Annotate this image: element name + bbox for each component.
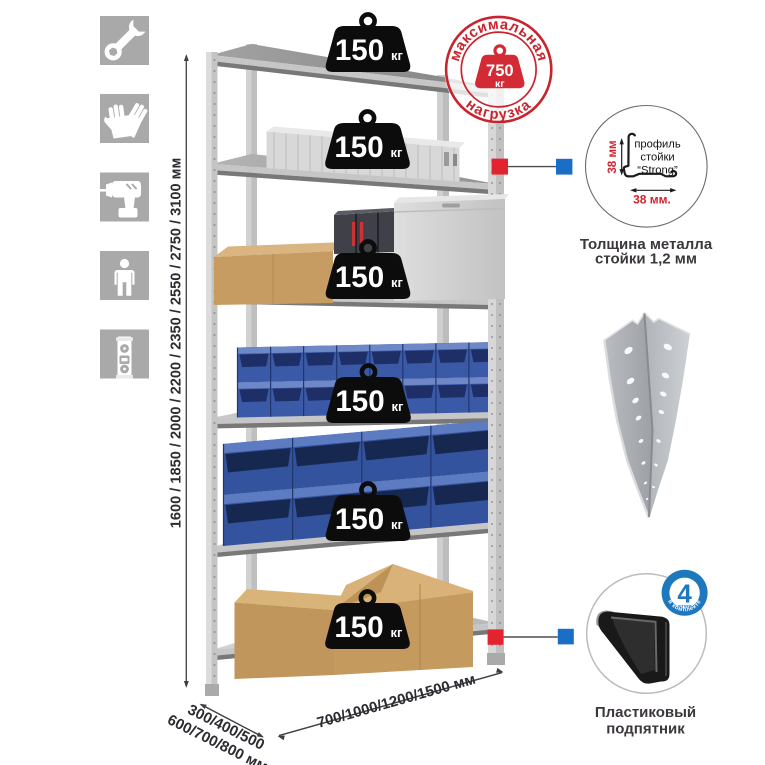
svg-text:150: 150 bbox=[334, 611, 383, 644]
svg-text:38 мм.: 38 мм. bbox=[633, 193, 671, 207]
svg-text:стойки 1,2 мм: стойки 1,2 мм bbox=[595, 251, 697, 268]
svg-text:150: 150 bbox=[334, 131, 383, 164]
svg-text:профиль: профиль bbox=[634, 139, 680, 151]
svg-text:стойки: стойки bbox=[640, 152, 674, 164]
svg-text:150: 150 bbox=[335, 503, 384, 536]
svg-text:“Strong”: “Strong” bbox=[637, 164, 678, 176]
svg-text:38 мм: 38 мм bbox=[606, 140, 619, 173]
svg-text:Пластиковый: Пластиковый bbox=[595, 704, 696, 721]
svg-text:150: 150 bbox=[335, 261, 384, 294]
svg-text:кг: кг bbox=[495, 78, 505, 90]
svg-text:подпятник: подпятник bbox=[606, 721, 685, 738]
svg-text:1600 / 1850 / 2000 / 2200 / 23: 1600 / 1850 / 2000 / 2200 / 2350 / 2550 … bbox=[169, 158, 185, 529]
svg-text:кг: кг bbox=[391, 517, 404, 532]
svg-text:кг: кг bbox=[391, 48, 404, 63]
svg-text:кг: кг bbox=[391, 625, 404, 640]
svg-text:кг: кг bbox=[391, 275, 404, 290]
svg-text:кг: кг bbox=[391, 145, 404, 160]
svg-text:150: 150 bbox=[335, 385, 384, 418]
svg-text:кг: кг bbox=[392, 399, 405, 414]
svg-text:150: 150 bbox=[335, 34, 384, 67]
